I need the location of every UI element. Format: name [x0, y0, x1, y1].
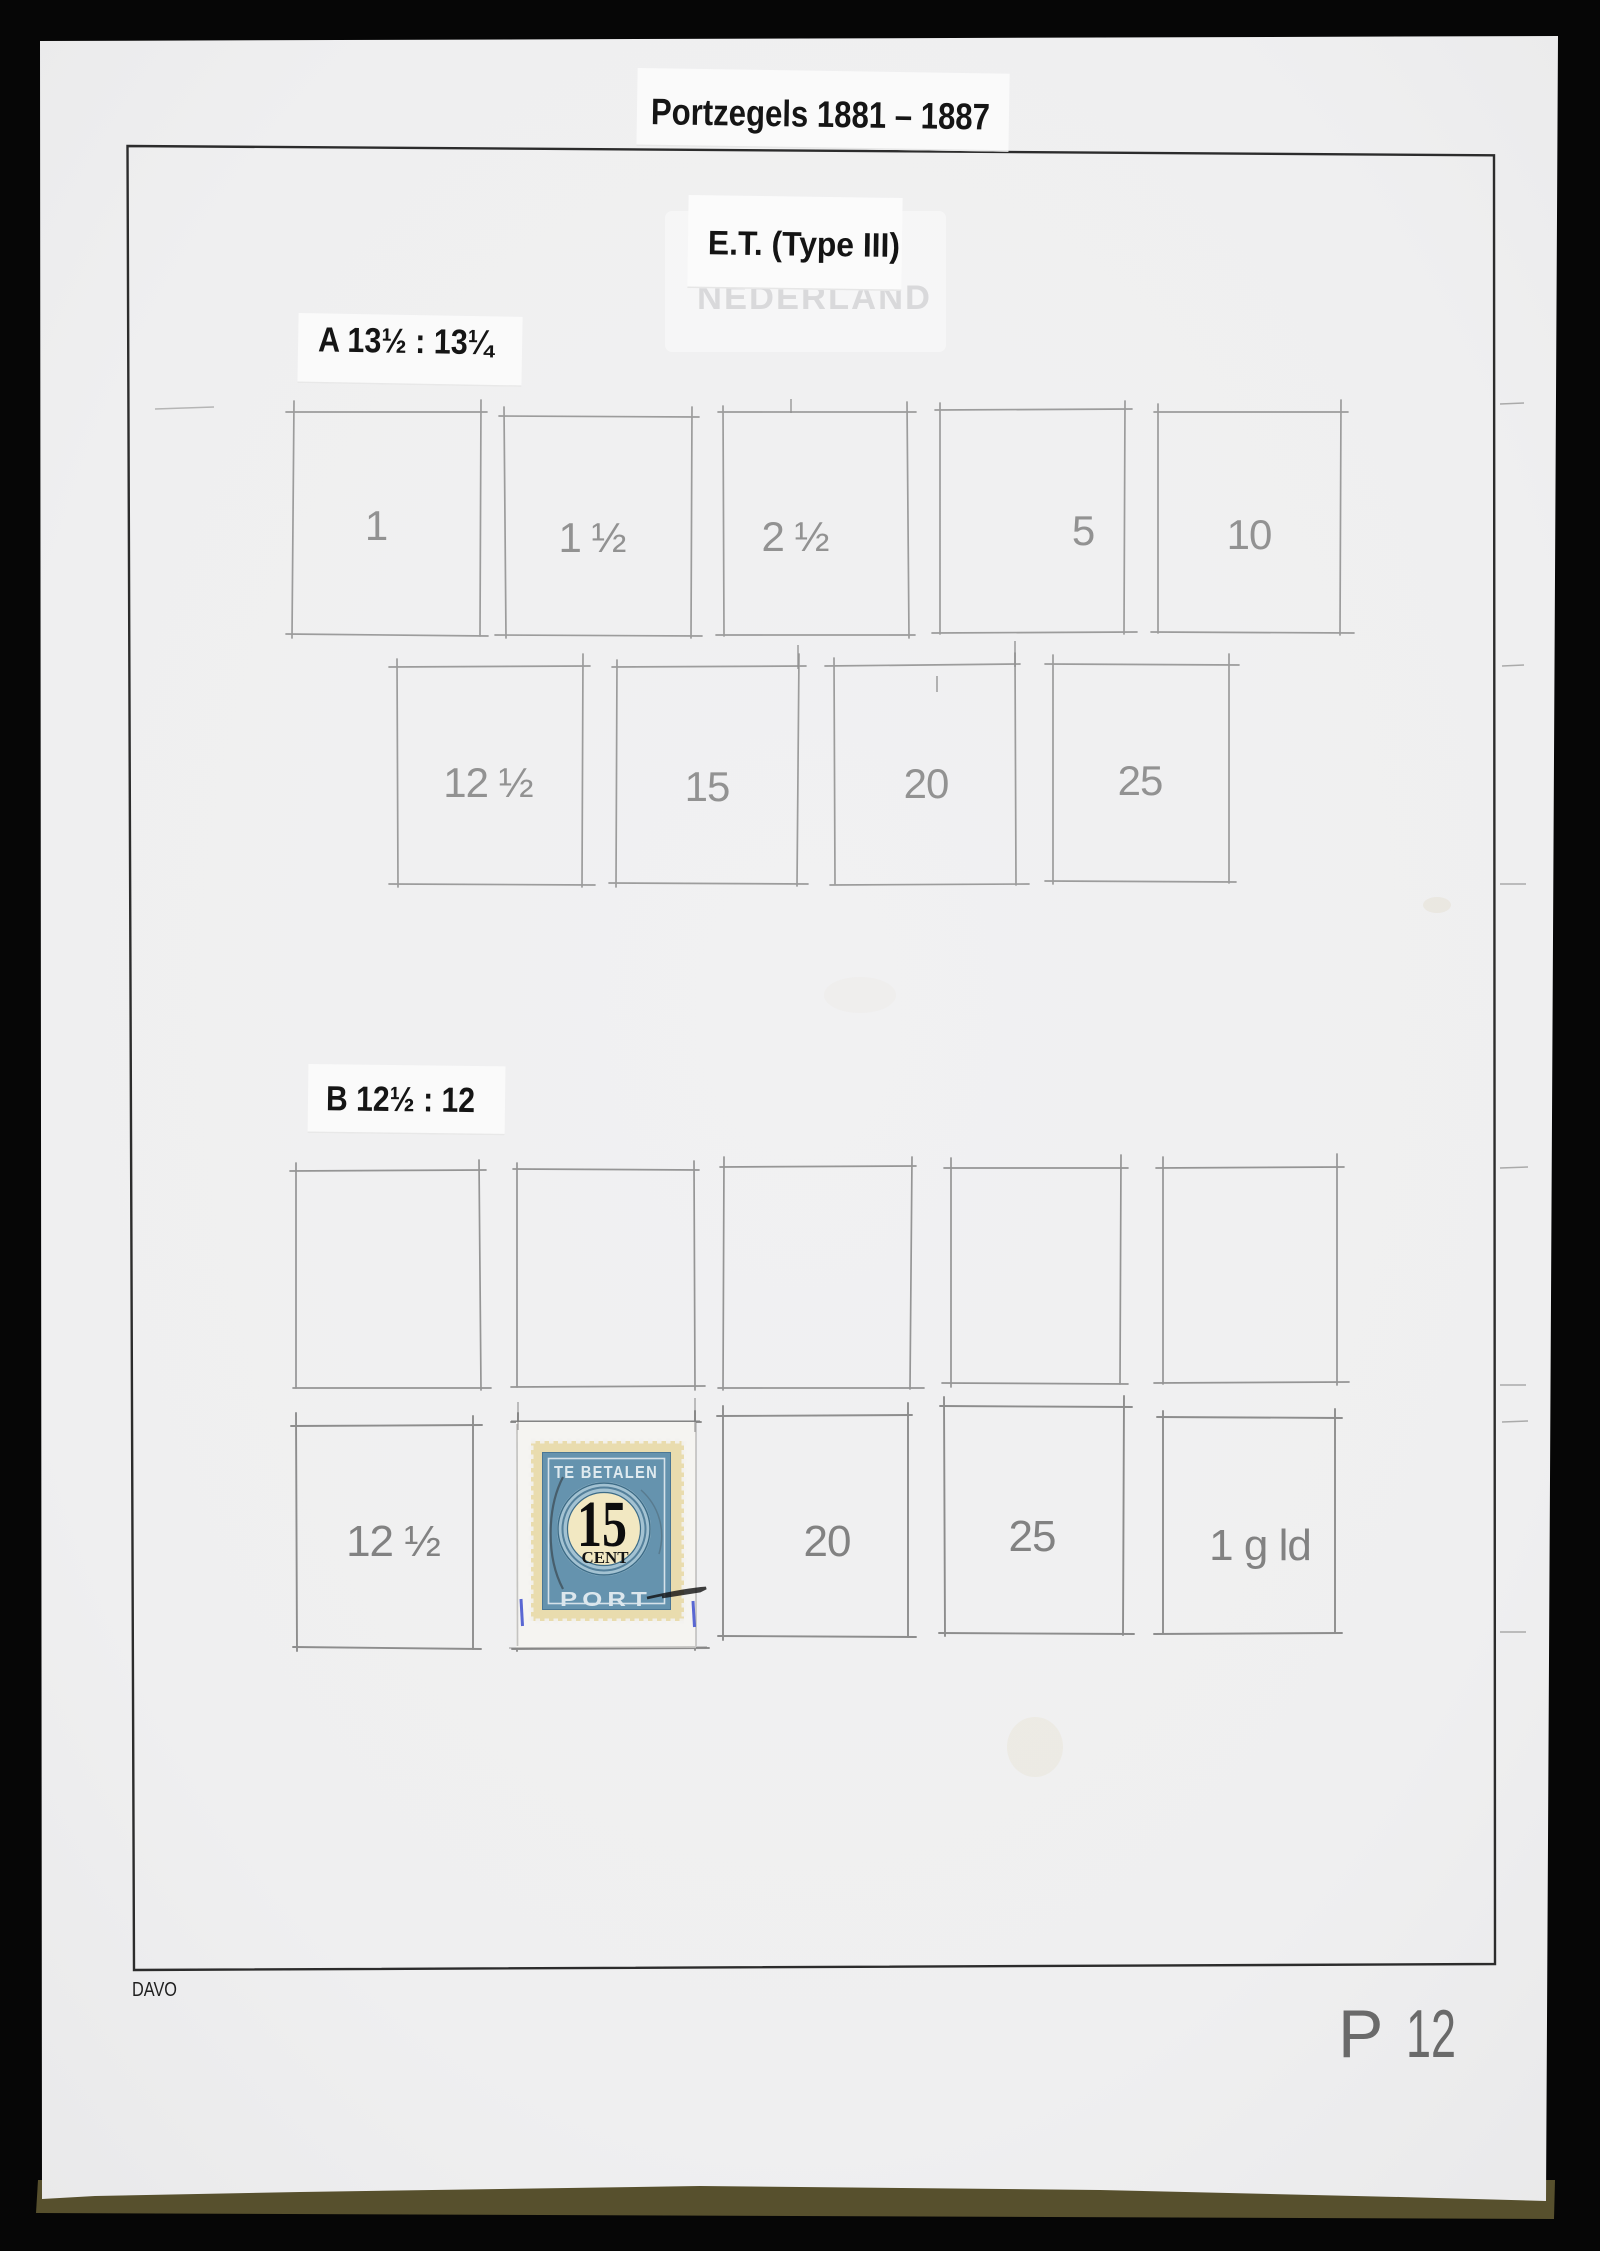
svg-text:TE BETALEN: TE BETALEN — [554, 1462, 658, 1482]
svg-text:A 13½ : 13¼: A 13½ : 13¼ — [318, 320, 496, 362]
svg-text:25: 25 — [1118, 757, 1163, 804]
svg-text:20: 20 — [804, 1517, 851, 1566]
svg-text:12 ½: 12 ½ — [443, 759, 532, 806]
svg-text:12: 12 — [1406, 1996, 1456, 2072]
svg-text:PORT: PORT — [560, 1589, 652, 1611]
svg-text:15: 15 — [685, 763, 730, 810]
svg-text:20: 20 — [904, 760, 949, 807]
svg-text:Portzegels 1881 – 1887: Portzegels 1881 – 1887 — [651, 91, 991, 137]
svg-text:25: 25 — [1009, 1512, 1056, 1561]
svg-text:1 g ld: 1 g ld — [1209, 1521, 1311, 1570]
svg-text:B 12½ : 12: B 12½ : 12 — [326, 1079, 475, 1120]
svg-text:1: 1 — [365, 502, 387, 549]
svg-text:2 ½: 2 ½ — [761, 513, 828, 560]
svg-text:12 ½: 12 ½ — [346, 1517, 440, 1566]
svg-text:E.T. (Type III): E.T. (Type III) — [708, 224, 901, 265]
svg-text:P: P — [1338, 1996, 1383, 2072]
svg-text:CENT: CENT — [582, 1548, 629, 1567]
svg-text:5: 5 — [1072, 507, 1094, 554]
svg-text:1 ½: 1 ½ — [558, 514, 625, 561]
svg-text:DAVO: DAVO — [132, 1979, 177, 2001]
svg-text:10: 10 — [1227, 511, 1272, 558]
